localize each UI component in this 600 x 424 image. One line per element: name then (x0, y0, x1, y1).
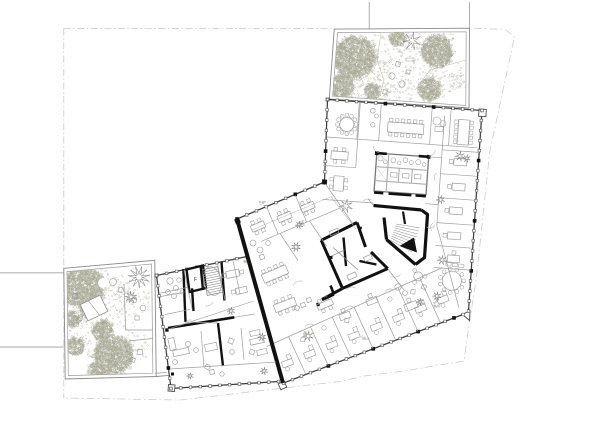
svg-text:F: F (194, 277, 197, 283)
